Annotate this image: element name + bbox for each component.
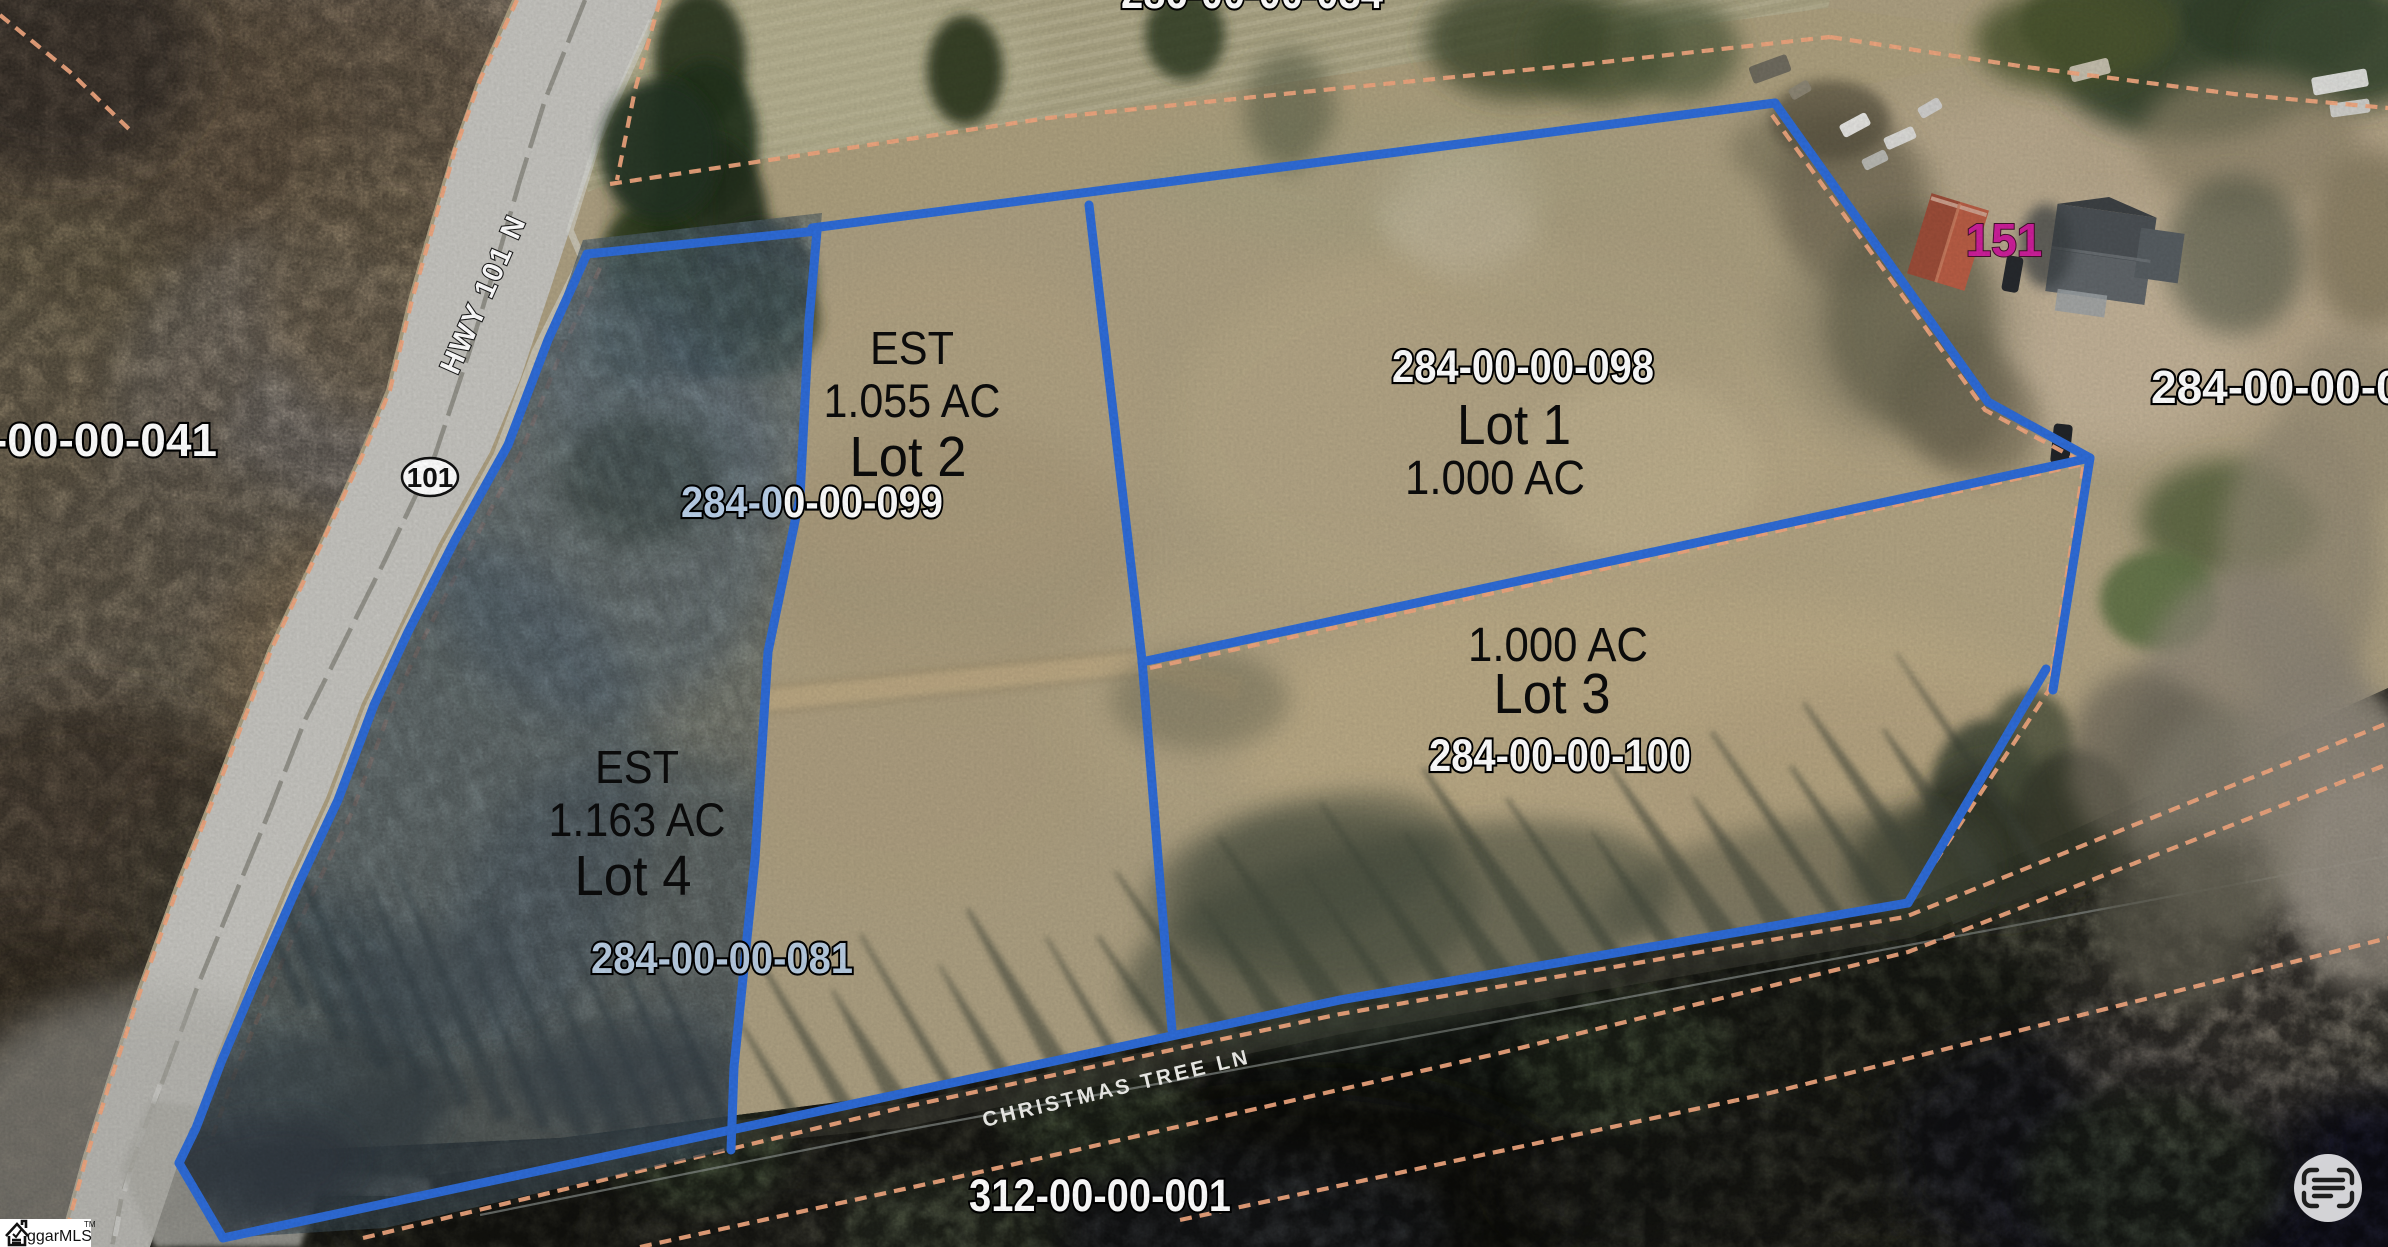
svg-text:TM: TM <box>84 1220 96 1229</box>
svg-text:ggarMLS: ggarMLS <box>27 1228 92 1245</box>
